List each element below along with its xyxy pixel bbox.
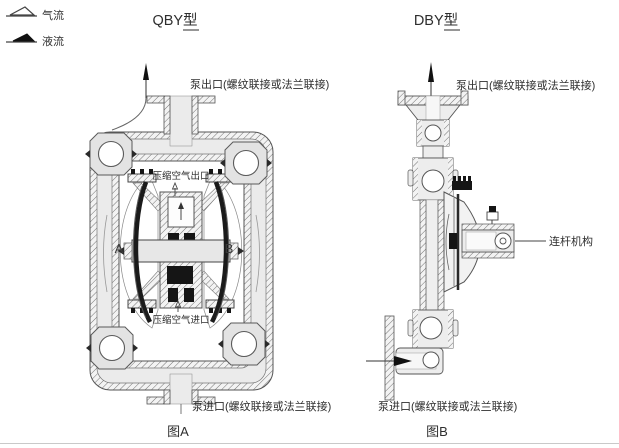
dby-linkage-label: 连杆机构 — [549, 234, 593, 248]
dby-outlet-arrow-icon — [428, 62, 434, 96]
dby-top-fitting — [487, 206, 498, 224]
dby-title: DBY型 — [414, 12, 458, 29]
qby-chamber-a-letter: A — [115, 241, 124, 256]
qby-pump-figure: QBY型 泵出口(螺纹联接或法兰联接) — [85, 12, 331, 439]
qby-caption: 图A — [167, 424, 189, 439]
dby-lower-ball-valve — [408, 310, 458, 348]
qby-ball-valve-top-right — [220, 142, 272, 184]
pump-diagram-canvas: 气流 液流 QBY型 泵出口(螺纹联接或法兰联接) — [0, 0, 619, 448]
dby-outlet-flange — [398, 91, 468, 120]
air-flow-arrow-icon — [6, 7, 37, 16]
dby-upper-ball-valve — [408, 120, 458, 200]
dby-chamber-cap — [452, 181, 472, 190]
qby-air-inlet-label: 压缩空气进口 — [152, 314, 209, 326]
qby-outlet-arrow-icon — [143, 63, 149, 98]
flow-legend: 气流 液流 — [6, 7, 64, 48]
qby-inlet-flange — [147, 397, 164, 404]
qby-ball-valve-bottom-right — [218, 323, 270, 365]
qby-chamber-b-letter: B — [225, 241, 234, 256]
liquid-flow-label: 液流 — [42, 34, 64, 48]
pump-diagram-page: 气流 液流 QBY型 泵出口(螺纹联接或法兰联接) — [0, 0, 619, 448]
qby-air-outlet-label: 压缩空气出口 — [152, 170, 209, 182]
dby-outlet-label: 泵出口(螺纹联接或法兰联接) — [456, 78, 595, 92]
dby-inlet-label: 泵进口(螺纹联接或法兰联接) — [378, 399, 517, 413]
qby-ball-valve-bottom-left — [86, 327, 138, 369]
qby-outlet-flow-line — [112, 98, 146, 130]
qby-inlet-label: 泵进口(螺纹联接或法兰联接) — [192, 399, 331, 413]
liquid-flow-arrow-icon — [6, 34, 37, 42]
qby-ball-valve-top-left — [85, 133, 137, 175]
qby-title: QBY型 — [152, 12, 197, 29]
qby-outlet-label: 泵出口(螺纹联接或法兰联接) — [190, 77, 329, 91]
dby-pump-figure: DBY型 泵出口(螺纹联接或法兰联接) — [366, 12, 595, 439]
air-flow-label: 气流 — [42, 8, 64, 22]
dby-riser-pipe — [420, 200, 444, 312]
dby-inlet-flange — [385, 316, 394, 400]
dby-caption: 图B — [426, 424, 448, 439]
qby-outlet-flange — [147, 96, 164, 103]
